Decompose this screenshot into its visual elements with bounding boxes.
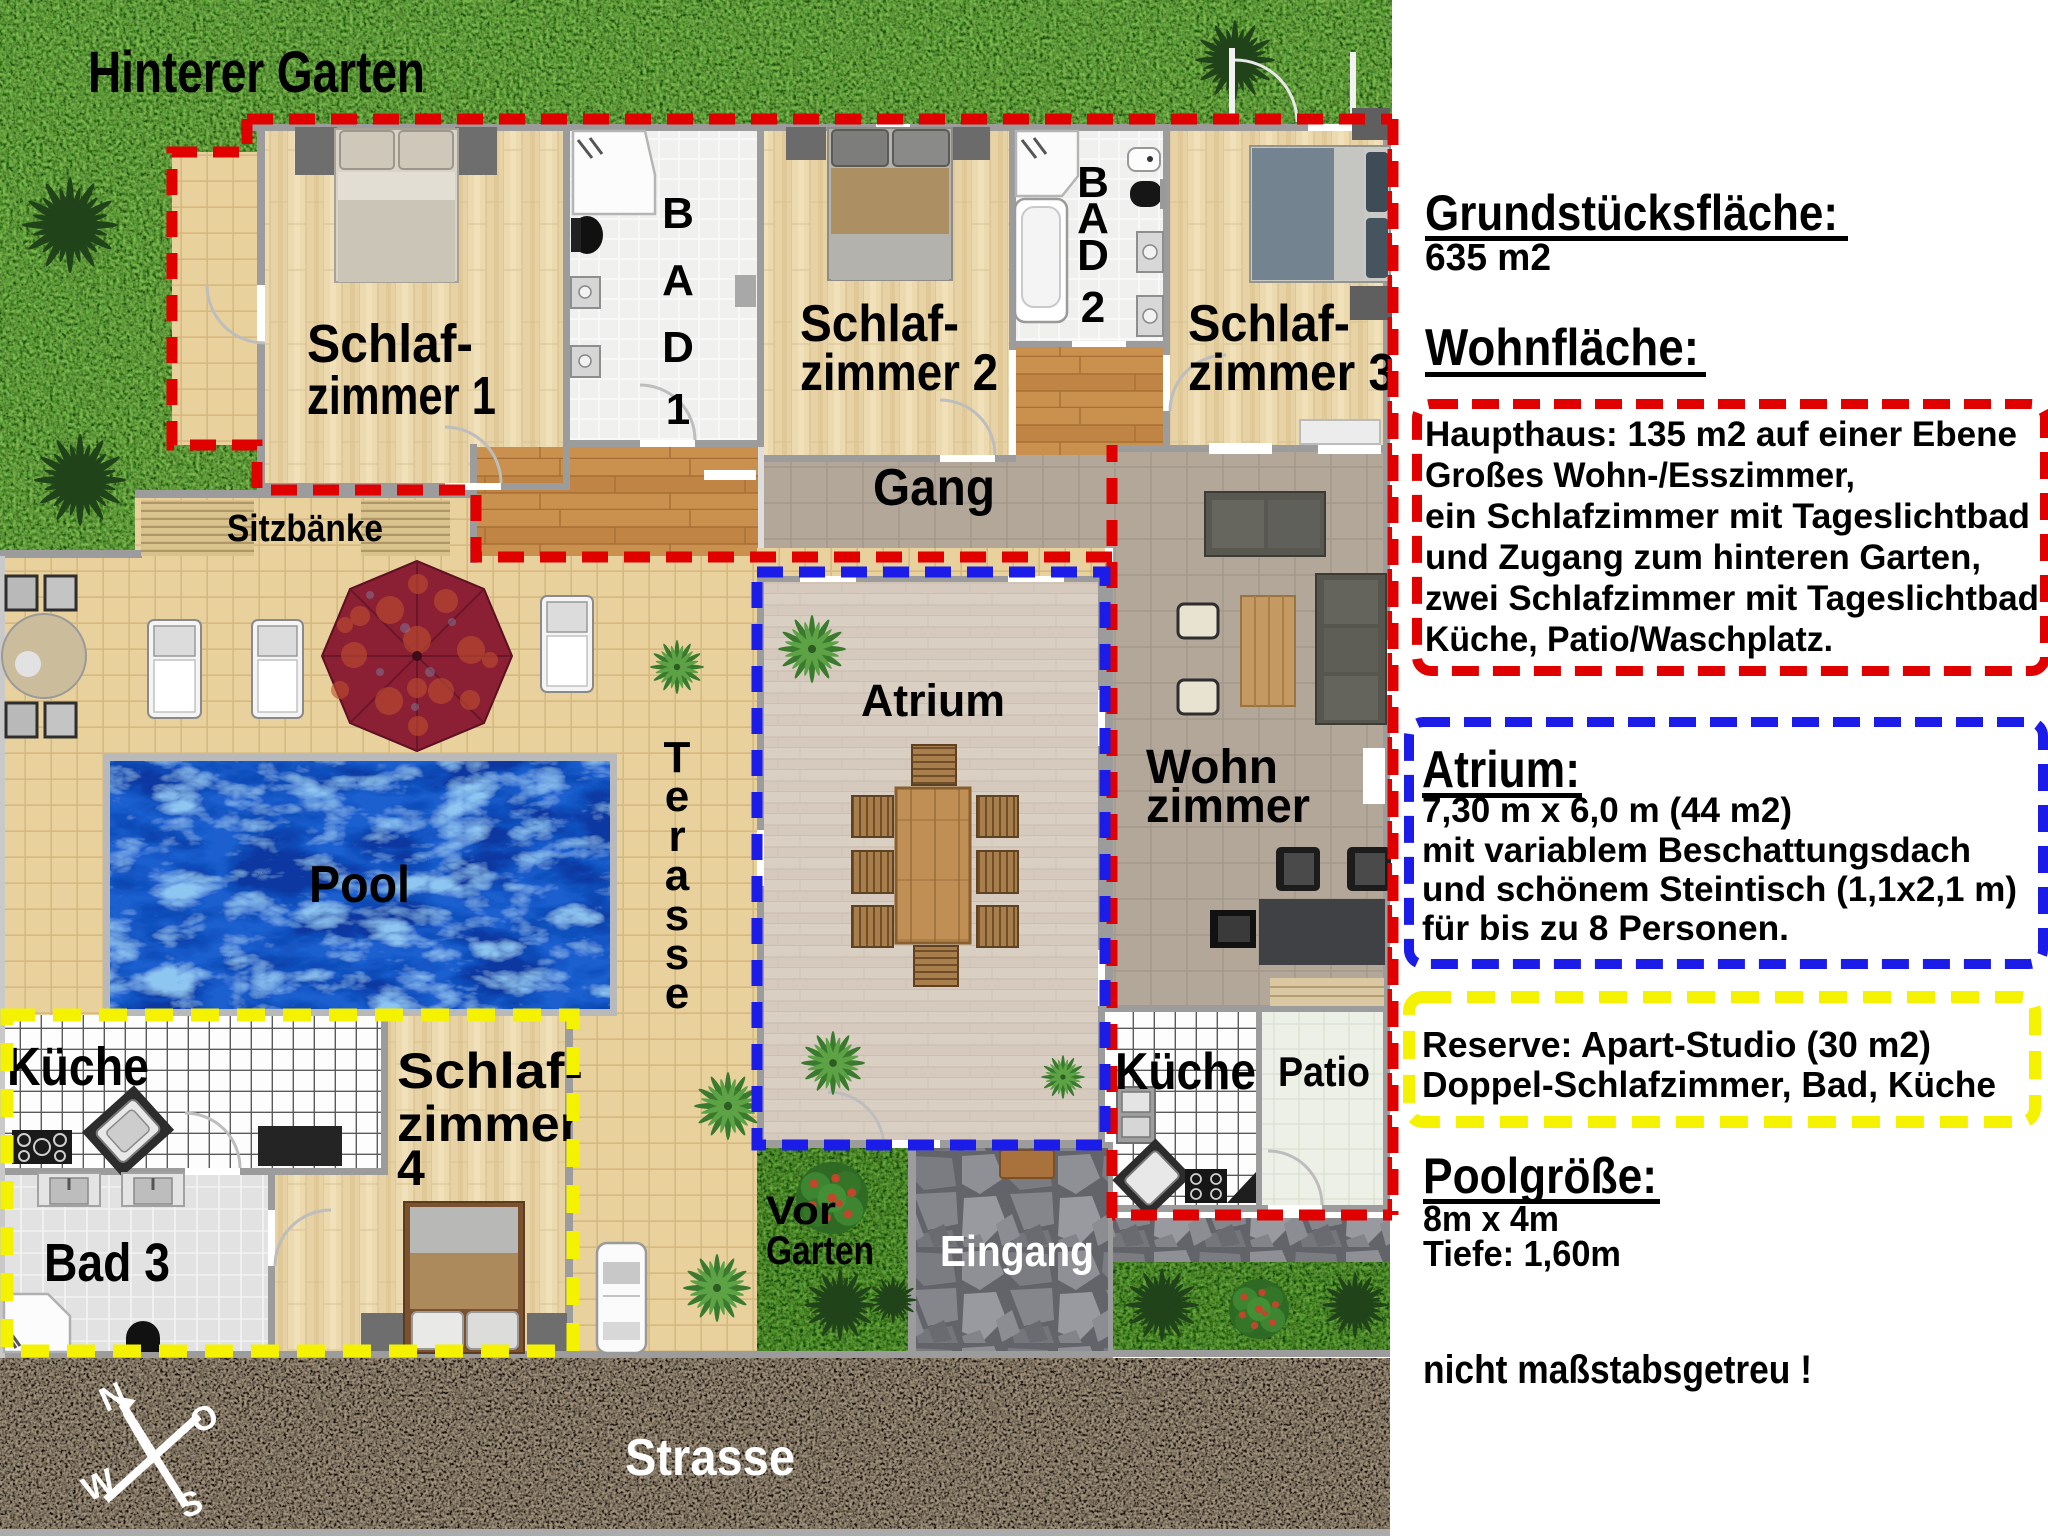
svg-text:Großes Wohn-/Esszimmer,: Großes Wohn-/Esszimmer, <box>1425 456 1855 495</box>
svg-text:Bad 3: Bad 3 <box>44 1233 170 1293</box>
svg-text:Strasse: Strasse <box>625 1429 795 1487</box>
svg-text:Gang: Gang <box>873 459 995 517</box>
svg-text:B: B <box>662 189 694 238</box>
svg-text:D: D <box>1077 231 1109 280</box>
svg-text:1: 1 <box>666 385 690 434</box>
svg-text:Hinterer Garten: Hinterer Garten <box>88 40 425 105</box>
svg-text:für bis zu 8 Personen.: für bis zu 8 Personen. <box>1422 909 1789 948</box>
svg-text:Schlaf-: Schlaf- <box>397 1043 583 1099</box>
svg-text:Reserve: Apart-Studio (30 m2): Reserve: Apart-Studio (30 m2) <box>1422 1024 1931 1065</box>
svg-text:Wohnfläche:: Wohnfläche: <box>1425 319 1699 377</box>
svg-text:Pool: Pool <box>309 856 410 914</box>
svg-text:zimmer 1: zimmer 1 <box>307 366 496 426</box>
svg-text:Grundstücksfläche:: Grundstücksfläche: <box>1425 185 1838 241</box>
svg-text:Garten: Garten <box>766 1229 874 1273</box>
svg-text:nicht maßstabsgetreu !: nicht maßstabsgetreu ! <box>1423 1348 1812 1392</box>
svg-text:7,30 m x 6,0 m (44 m2): 7,30 m x 6,0 m (44 m2) <box>1422 791 1792 830</box>
svg-text:Küche, Patio/Waschplatz.: Küche, Patio/Waschplatz. <box>1425 620 1833 659</box>
svg-text:mit variablem Beschattungsdach: mit variablem Beschattungsdach <box>1422 831 1971 870</box>
svg-text:D: D <box>662 323 694 372</box>
svg-text:Schlaf-: Schlaf- <box>307 314 473 374</box>
svg-text:4: 4 <box>397 1140 425 1196</box>
svg-text:Atrium: Atrium <box>861 675 1005 726</box>
svg-text:e: e <box>665 969 689 1018</box>
svg-text:Küche: Küche <box>1115 1043 1256 1101</box>
svg-text:ein Schlafzimmer mit Tageslich: ein Schlafzimmer mit Tageslichtbad <box>1425 497 2030 536</box>
svg-text:Poolgröße:: Poolgröße: <box>1423 1148 1657 1204</box>
svg-text:und Zugang zum hinteren Garten: und Zugang zum hinteren Garten, <box>1425 538 1981 577</box>
svg-text:635 m2: 635 m2 <box>1425 237 1551 279</box>
svg-text:Sitzbänke: Sitzbänke <box>227 508 383 550</box>
svg-text:A: A <box>662 256 694 305</box>
svg-text:Patio: Patio <box>1278 1048 1370 1095</box>
svg-text:zimmer: zimmer <box>1146 780 1310 833</box>
svg-text:zwei Schlafzimmer mit Tageslic: zwei Schlafzimmer mit Tageslichtbad <box>1425 579 2039 618</box>
svg-text:Eingang: Eingang <box>940 1227 1094 1276</box>
svg-text:Küche: Küche <box>7 1037 149 1097</box>
svg-text:zimmer 2: zimmer 2 <box>800 344 998 402</box>
svg-text:Doppel-Schlafzimmer, Bad, Küch: Doppel-Schlafzimmer, Bad, Küche <box>1422 1064 1996 1105</box>
svg-text:Haupthaus: 135 m2 auf einer Eb: Haupthaus: 135 m2 auf einer Ebene <box>1425 415 2017 454</box>
svg-text:zimmer 3: zimmer 3 <box>1188 344 1395 402</box>
svg-text:2: 2 <box>1081 283 1105 332</box>
svg-text:und schönem Steintisch (1,1x2,: und schönem Steintisch (1,1x2,1 m) <box>1422 870 2017 909</box>
svg-text:Tiefe: 1,60m: Tiefe: 1,60m <box>1423 1233 1621 1274</box>
svg-text:Vor: Vor <box>766 1189 836 1233</box>
